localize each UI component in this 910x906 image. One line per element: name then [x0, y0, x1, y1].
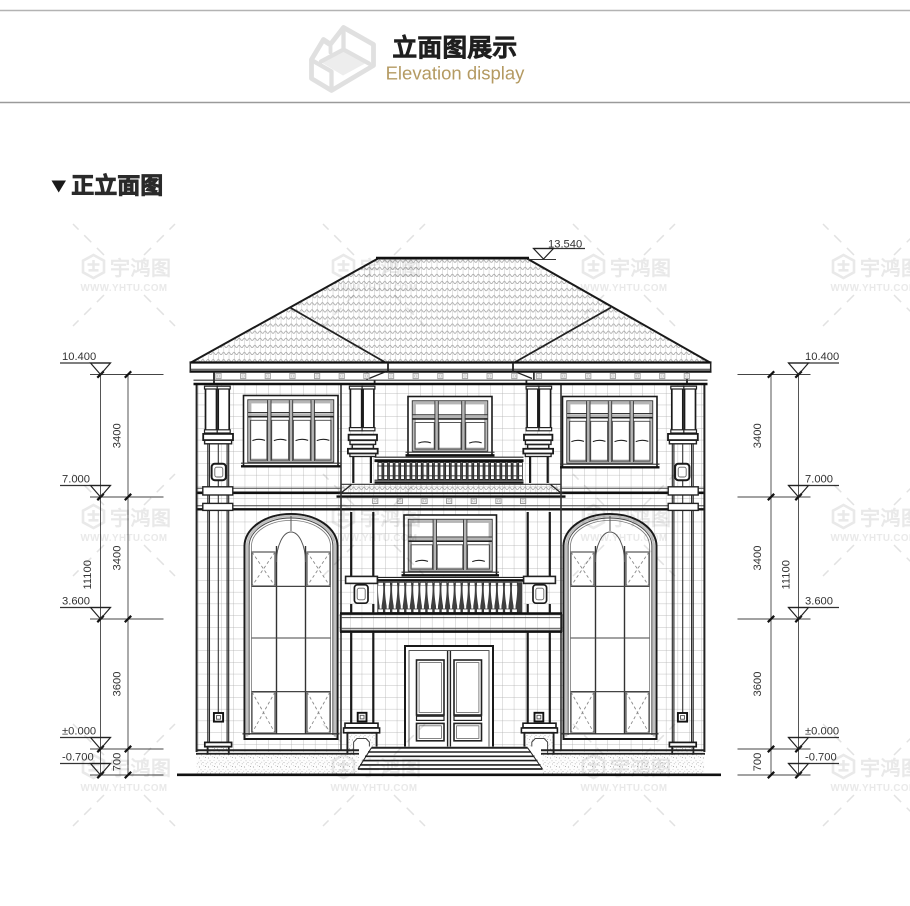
- svg-text:3400: 3400: [752, 423, 764, 448]
- svg-text:WWW.YHTU.COM: WWW.YHTU.COM: [581, 533, 668, 544]
- svg-text:宇鸿图: 宇鸿图: [360, 256, 422, 280]
- svg-text:宇鸿图: 宇鸿图: [360, 506, 422, 530]
- svg-text:WWW.YHTU.COM: WWW.YHTU.COM: [831, 533, 910, 544]
- svg-text:WWW.YHTU.COM: WWW.YHTU.COM: [581, 283, 668, 294]
- svg-text:宇鸿图: 宇鸿图: [110, 506, 172, 530]
- svg-text:Elevation display: Elevation display: [386, 63, 526, 84]
- svg-text:WWW.YHTU.COM: WWW.YHTU.COM: [831, 783, 910, 794]
- svg-text:WWW.YHTU.COM: WWW.YHTU.COM: [331, 283, 418, 294]
- svg-text:WWW.YHTU.COM: WWW.YHTU.COM: [331, 783, 418, 794]
- svg-text:立面图展示: 立面图展示: [393, 33, 518, 62]
- svg-text:3400: 3400: [112, 546, 124, 571]
- svg-text:WWW.YHTU.COM: WWW.YHTU.COM: [581, 783, 668, 794]
- svg-text:宇鸿图: 宇鸿图: [610, 506, 672, 530]
- svg-text:WWW.YHTU.COM: WWW.YHTU.COM: [81, 283, 168, 294]
- svg-text:3400: 3400: [752, 546, 764, 571]
- svg-text:宇鸿图: 宇鸿图: [610, 756, 672, 780]
- svg-text:7.000: 7.000: [62, 474, 90, 486]
- svg-text:WWW.YHTU.COM: WWW.YHTU.COM: [331, 533, 418, 544]
- svg-text:宇鸿图: 宇鸿图: [110, 256, 172, 280]
- svg-text:10.400: 10.400: [805, 351, 839, 363]
- svg-text:3600: 3600: [752, 672, 764, 697]
- svg-text:3.600: 3.600: [62, 596, 90, 608]
- svg-text:7.000: 7.000: [805, 474, 833, 486]
- svg-text:10.400: 10.400: [62, 351, 96, 363]
- svg-text:宇鸿图: 宇鸿图: [860, 256, 910, 280]
- svg-text:宇鸿图: 宇鸿图: [610, 256, 672, 280]
- svg-text:3600: 3600: [112, 672, 124, 697]
- svg-text:3400: 3400: [112, 423, 124, 448]
- svg-text:3.600: 3.600: [805, 596, 833, 608]
- svg-text:正立面图: 正立面图: [72, 173, 164, 199]
- svg-text:宇鸿图: 宇鸿图: [860, 506, 910, 530]
- svg-text:宇鸿图: 宇鸿图: [110, 756, 172, 780]
- svg-text:宇鸿图: 宇鸿图: [360, 756, 422, 780]
- svg-text:WWW.YHTU.COM: WWW.YHTU.COM: [831, 283, 910, 294]
- svg-text:宇鸿图: 宇鸿图: [860, 756, 910, 780]
- svg-text:WWW.YHTU.COM: WWW.YHTU.COM: [81, 783, 168, 794]
- svg-text:±0.000: ±0.000: [62, 726, 96, 738]
- svg-text:11100: 11100: [82, 560, 94, 589]
- svg-text:11100: 11100: [781, 560, 793, 589]
- svg-text:700: 700: [752, 753, 764, 772]
- svg-text:WWW.YHTU.COM: WWW.YHTU.COM: [81, 533, 168, 544]
